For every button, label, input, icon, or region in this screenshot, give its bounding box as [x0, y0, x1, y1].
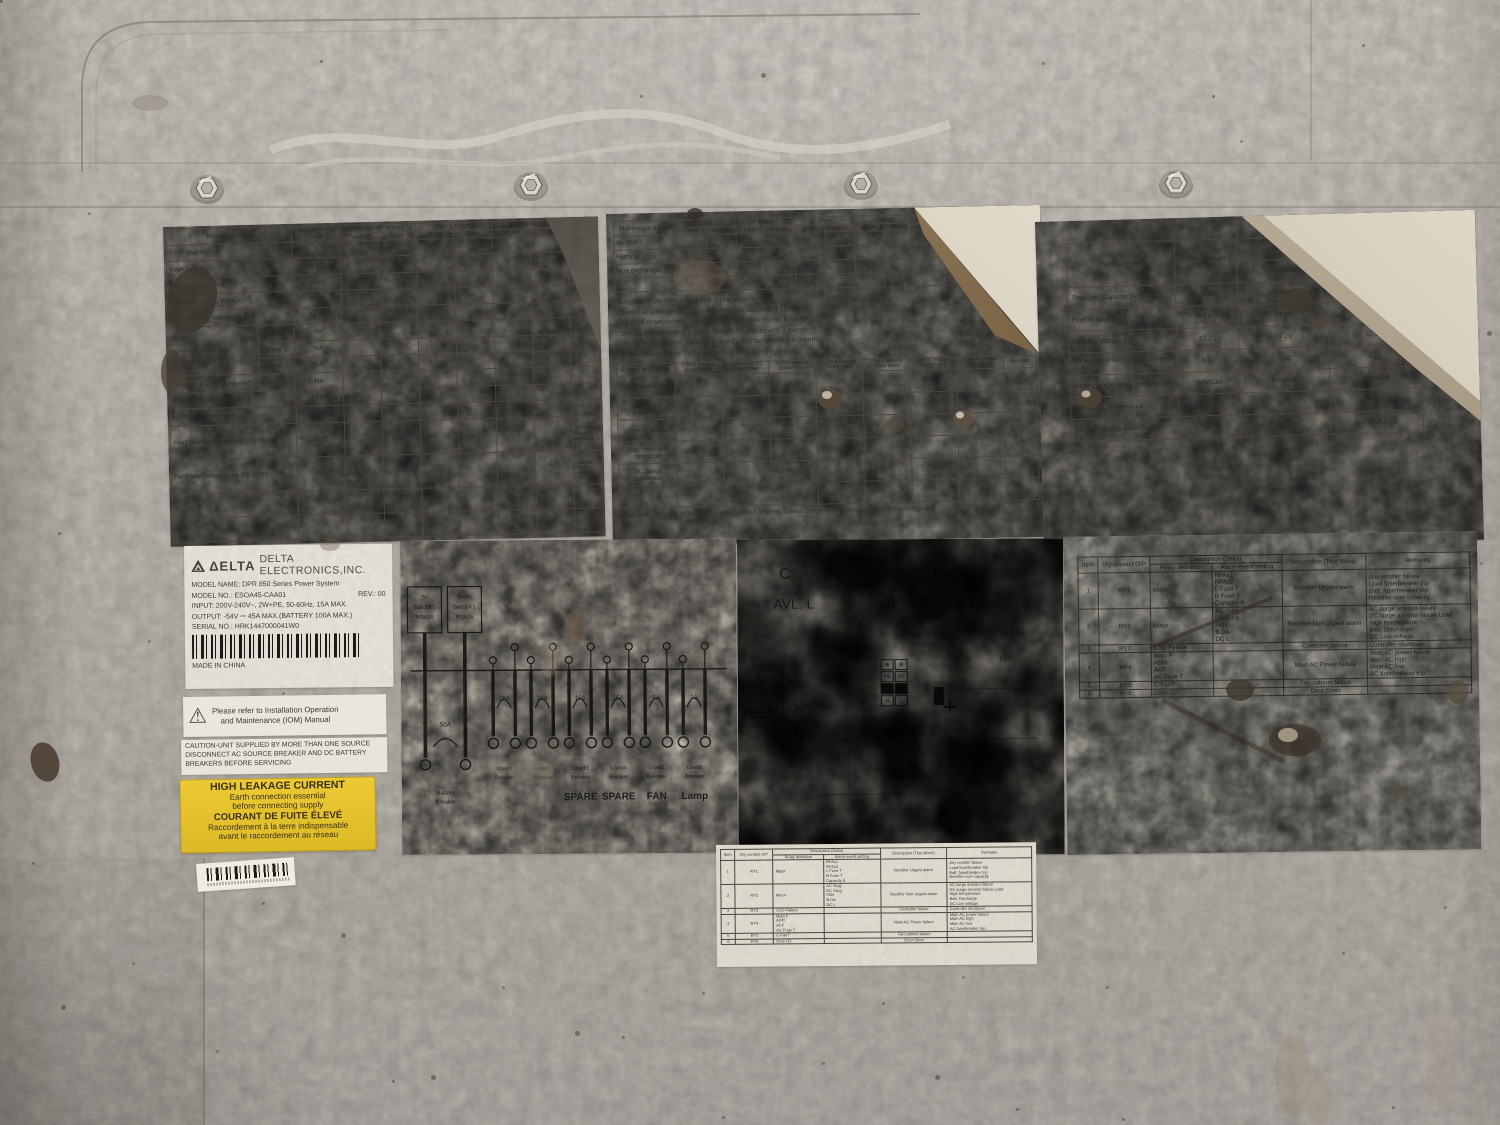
- maint-empty-cell: [884, 230, 914, 245]
- param-empty-cell: [380, 321, 418, 338]
- battery-factory-value: 25°C: [1178, 393, 1241, 417]
- dry-contact-table: ItemDry contact O/PDescription (Delta)De…: [720, 846, 1033, 945]
- dry-row: 4RY4Main F ADH ACF AC Fuse TMain AC Powe…: [1079, 648, 1471, 682]
- param-empty-cell: [459, 452, 498, 487]
- maint-empty-cell: [944, 257, 974, 272]
- dry-alarm-event: AC Surg DC Surg FAN B.Dis DC L: [1212, 606, 1283, 643]
- exam-empty-cell: [910, 391, 957, 414]
- maint-empty-cell: [1003, 242, 1033, 257]
- maint-empty-cell: [974, 270, 1004, 285]
- dry-alarm-event: RFAx1 RFAx2 L Fuse T B Fuse T Capacity A: [824, 859, 881, 883]
- maint-empty-cell: [915, 257, 945, 272]
- label-caution-multisource: CAUTION-UNIT SUPPLIED BY MORE THAN ONE S…: [181, 737, 387, 775]
- maint-empty-cell: [706, 234, 736, 249]
- col-description-truemove: Description (True Move): [880, 847, 947, 859]
- col-setting-items: Setting Items: [1066, 241, 1175, 288]
- param-empty-cell: [495, 351, 533, 368]
- svg-text:SPARE: SPARE: [602, 791, 636, 802]
- param-empty-cell: [381, 354, 419, 371]
- dry-relay-name: RY4: [735, 914, 774, 934]
- param-empty-cell: [458, 402, 496, 419]
- dry-tbody: 1RY1MajorRFAx1 RFAx2 L Fuse T B Fuse T C…: [1078, 568, 1472, 698]
- label-dry-contact-mini: ItemDry contact O/PDescription (Delta)De…: [716, 842, 1037, 967]
- param-empty-cell: [457, 369, 495, 386]
- dry-relay-definition: Major: [1150, 571, 1212, 608]
- param-name: [173, 515, 300, 542]
- dry-item: 1: [721, 861, 735, 885]
- maintenance-table: Maintenance ItemDateDateDateDateDateDate…: [613, 212, 1034, 293]
- dry-remarks: Main AC power failure Main AC high Main …: [1367, 648, 1471, 678]
- param-empty-cell: [383, 454, 422, 489]
- param-empty-cell: [499, 509, 538, 534]
- param-empty-cell: [418, 337, 456, 354]
- maint-item-name: heat exchanger: [615, 263, 678, 278]
- param-name: Fan2 start temperature (°C or °F): [171, 457, 298, 494]
- param-empty-cell: [385, 512, 424, 537]
- exam-empty-cell: [864, 414, 911, 437]
- svg-text:Batt.BK1: Batt.BK1: [453, 604, 475, 610]
- dry-item: 2: [1079, 609, 1100, 645]
- maint-empty-cell: [677, 262, 707, 277]
- battery-50ah-value: 25°C: [1240, 390, 1331, 415]
- svg-text:Lamp: Lamp: [681, 791, 708, 802]
- label-maintenance-schedule: Maintenance ItemDateDateDateDateDateDate…: [606, 205, 1047, 546]
- dry-alarm-event: RFAx1 RFAx2 L Fuse T B Fuse T Capacity A: [1212, 570, 1283, 607]
- exam-empty-cell: [959, 456, 1006, 479]
- dry-relay-definition: Main F ADH ACF AC Fuse T: [774, 913, 825, 933]
- exam-empty-cell: [722, 373, 769, 396]
- exam-item-name: [619, 485, 677, 508]
- param-default-value: NA: [295, 356, 343, 374]
- maint-empty-cell: [914, 243, 944, 258]
- maint-empty-cell: [707, 262, 737, 277]
- maint-empty-cell: [825, 245, 855, 260]
- battery-factory-value: 57.2V: [1177, 327, 1240, 351]
- param-remark: [570, 333, 599, 350]
- maint-empty-cell: [765, 233, 795, 248]
- param-sub: Stage 3: [259, 357, 295, 374]
- battery-50ah-value: 0.1C: [1239, 346, 1330, 371]
- svg-text:Batt.BK1: Batt.BK1: [413, 605, 435, 611]
- maint-empty-cell: [795, 246, 825, 261]
- terminal-cell: N: [881, 695, 894, 706]
- exam-empty-cell: [770, 416, 817, 439]
- param-empty-cell: [454, 254, 492, 271]
- dry-remarks: AC surge arrestor failure DC surge arres…: [1366, 604, 1470, 641]
- col-50ah: 50AH Battery: [1237, 258, 1328, 283]
- col-remark: Remark: [567, 219, 596, 236]
- col-check-record: Check Record(Date/Time): [957, 356, 1004, 370]
- dry-tbody: 1RY1MajorRFAx1 RFAx2 L Fuse T B Fuse T C…: [721, 858, 1033, 945]
- param-table-mount: Item parameterDefault setting valueInsta…: [163, 216, 606, 547]
- svg-text:Breaker: Breaker: [495, 775, 515, 781]
- param-remark: □Fan tray □heat exchange: [573, 450, 603, 485]
- dry-relay-definition: Door O2: [1152, 688, 1214, 697]
- svg-text:16A: 16A: [613, 694, 625, 701]
- maint-empty-cell: [676, 234, 706, 249]
- maint-empty-cell: [826, 273, 856, 288]
- param-empty-cell: [461, 510, 500, 535]
- param-empty-cell: [536, 485, 575, 510]
- dry-relay-name: RY1: [735, 860, 774, 884]
- dry-relay-definition: Major: [773, 860, 824, 884]
- param-empty-cell: [341, 290, 379, 307]
- param-empty-cell: [379, 305, 417, 322]
- param-empty-cell: [419, 353, 457, 370]
- param-default-value: 43.0V: [296, 389, 344, 407]
- param-empty-cell: [378, 239, 416, 256]
- maint-empty-cell: [736, 247, 766, 262]
- param-remark: [569, 284, 598, 301]
- exam-empty-cell: [1006, 456, 1039, 479]
- battery-100ah-value: 100AH: [1327, 278, 1420, 303]
- col-factory-default: Factory default setting: [1174, 239, 1237, 285]
- param-empty-cell: [378, 256, 416, 273]
- maint-empty-cell: [1004, 270, 1034, 285]
- maint-empty-cell: [915, 271, 945, 286]
- maint-empty-cell: [677, 276, 707, 291]
- param-empty-cell: [455, 287, 493, 304]
- dry-row: 1RY1MajorRFAx1 RFAx2 L Fuse T B Fuse T C…: [721, 858, 1032, 885]
- battery-table: Setting ItemsFactory default settingReco…: [1066, 233, 1424, 442]
- dry-description: Main AC Power failure: [1283, 649, 1367, 679]
- dry-description: Door Open: [881, 937, 948, 943]
- param-remark: [568, 235, 597, 252]
- maint-empty-cell: [855, 259, 885, 274]
- exam-empty-cell: [910, 369, 957, 392]
- svg-text:SPARE: SPARE: [564, 792, 598, 803]
- param-default-value: 54.0V: [293, 290, 341, 308]
- hex-bolt: [190, 175, 224, 204]
- exam-tbody: Date and TimeAC Surge protectionBattery …: [617, 368, 1040, 509]
- param-empty-cell: [422, 487, 461, 512]
- exam-item-name: DC Surge protection: [619, 463, 677, 486]
- exam-empty-cell: [676, 418, 723, 441]
- param-empty-cell: [417, 304, 455, 321]
- battery-100ah-value: 25°C: [1330, 388, 1423, 413]
- label-iom-notice: ⚠ Please refer to Installation Operation…: [183, 694, 387, 737]
- col-exam-remark: Remark: [1004, 355, 1037, 368]
- exam-empty-cell: [912, 457, 959, 480]
- param-empty-cell: [379, 289, 417, 306]
- svg-text:Battery: Battery: [437, 791, 456, 797]
- exam-empty-cell: [818, 481, 865, 504]
- dry-description: Rectifier Urgent alarm: [880, 859, 947, 884]
- svg-text:From: From: [458, 595, 471, 601]
- param-empty-cell: [382, 420, 421, 455]
- dry-contact-table-mount: ItemDry contact O/PDescription (Delta)De…: [1063, 531, 1481, 855]
- dry-remarks: [947, 936, 1032, 942]
- param-remark: [571, 383, 600, 400]
- exam-empty-cell: [1006, 478, 1039, 501]
- exam-empty-cell: [865, 458, 912, 481]
- maint-empty-cell: [914, 229, 944, 244]
- svg-text:1A: 1A: [690, 694, 698, 701]
- param-empty-cell: [531, 268, 569, 285]
- svg-text:16A: 16A: [499, 695, 511, 702]
- param-default-value: 3: [292, 241, 340, 259]
- maint-tbody: Air filterFan trayheat exchanger: [614, 228, 1034, 293]
- param-empty-cell: [456, 336, 494, 353]
- col-remarks: Remarks: [947, 847, 1032, 859]
- exam-empty-cell: [723, 439, 770, 462]
- label-dry-contact-large: ItemDry contact O/PDescription (Delta)De…: [1063, 531, 1481, 855]
- col-examination-item: Examination Item: [617, 363, 675, 377]
- dry-relay-name: RY1: [1098, 572, 1150, 609]
- dry-alarm-event: [824, 938, 881, 944]
- dry-contact-table: ItemDry contact O/PDescription (Delta)De…: [1077, 551, 1472, 698]
- photo-equipment-panel: Item parameterDefault setting valueInsta…: [0, 0, 1500, 1125]
- param-name: EQ current limit (0.X C): [168, 325, 259, 376]
- terminal-block: ⊗ ⊗ PE PE N L: [881, 659, 908, 706]
- maint-empty-cell: [885, 244, 915, 259]
- battery-100ah-value: 58.0V: [1331, 410, 1424, 435]
- svg-text:Breaker: Breaker: [609, 774, 629, 780]
- breaker-diagram-mount: ToBatt.BK1POA16FromBatt.BK1POA1650ABatte…: [400, 539, 738, 855]
- exam-empty-cell: [1004, 368, 1037, 391]
- param-default-value: NA: [294, 340, 342, 358]
- maint-empty-cell: [944, 229, 974, 244]
- svg-text:16A: 16A: [537, 695, 549, 702]
- col-check-record: Check Record(Date/Time): [769, 360, 816, 374]
- maint-empty-cell: [855, 273, 885, 288]
- label-high-leakage-warning: HIGH LEAKAGE CURRENT Earth connection es…: [179, 776, 376, 853]
- param-empty-cell: [535, 450, 574, 485]
- param-empty-cell: [492, 237, 530, 254]
- param-empty-cell: [456, 320, 494, 337]
- dry-item: 5: [1080, 682, 1100, 690]
- param-empty-cell: [342, 339, 380, 356]
- param-name: [172, 491, 299, 518]
- exam-empty-cell: [912, 479, 959, 502]
- svg-text:50A: 50A: [439, 722, 451, 729]
- param-empty-cell: [530, 252, 568, 269]
- maint-empty-cell: [885, 272, 915, 287]
- dirt-specks: [0, 0, 3, 3]
- param-empty-cell: [494, 319, 532, 336]
- dry-relay-definition: Minor: [1151, 607, 1213, 644]
- maint-empty-cell: [944, 243, 974, 258]
- maint-empty-cell: [855, 245, 885, 260]
- param-empty-cell: [416, 255, 454, 272]
- dry-alarm-event: AC Surg DC Surg FAN B.Dis DC L: [824, 883, 881, 907]
- hex-bolt: [844, 171, 878, 200]
- maint-empty-cell: [707, 276, 737, 291]
- maint-empty-cell: [736, 261, 766, 276]
- param-remark: [575, 508, 605, 533]
- exam-empty-cell: [817, 437, 864, 460]
- svg-text:Breaker: Breaker: [647, 774, 667, 780]
- svg-text:16A: 16A: [575, 695, 587, 702]
- param-empty-cell: [534, 400, 572, 417]
- param-remark: [571, 366, 600, 383]
- dry-alarm-event: [1213, 650, 1283, 680]
- param-empty-cell: [496, 417, 535, 452]
- exam-item-name: Date and Time: [617, 375, 675, 398]
- param-empty-cell: [381, 371, 419, 388]
- param-default-value: NA: [297, 456, 346, 491]
- battery-setting-name: DC high voltage alarm (DCH): [1071, 417, 1180, 442]
- param-remark: [574, 484, 604, 509]
- param-empty-cell: [347, 513, 386, 538]
- param-empty-cell: [345, 455, 384, 490]
- param-remark: □Fan tray □heat exchange: [572, 415, 602, 450]
- param-empty-cell: [344, 388, 382, 405]
- param-default-value: NA: [295, 373, 343, 391]
- battery-setting-name: Float Voltage (V): [1068, 307, 1177, 332]
- maint-empty-cell: [854, 231, 884, 246]
- dry-remarks: AC surge arrestor failure DC surge arres…: [947, 882, 1032, 907]
- param-empty-cell: [498, 485, 537, 510]
- maint-empty-cell: [825, 259, 855, 274]
- battery-factory-value: 58.0V: [1179, 415, 1242, 439]
- dry-relay-definition: Minor: [773, 884, 824, 908]
- exam-empty-cell: [1005, 434, 1038, 457]
- param-sub: Stage 2: [258, 341, 294, 358]
- battery-50ah-value: 3mV/Cell: [1240, 368, 1331, 393]
- param-empty-cell: [533, 351, 571, 368]
- param-empty-cell: [532, 318, 570, 335]
- dry-relay-name: RY2: [1099, 608, 1151, 645]
- col-check-record: Check Record(Date/Time): [675, 362, 722, 376]
- examination-table: Examination ItemCheck Record(Date/Time)C…: [616, 355, 1040, 509]
- param-sub: Stage 1: [258, 324, 294, 341]
- param-empty-cell: [496, 401, 534, 418]
- battery-factory-value: 3mV/Cell: [1178, 371, 1241, 395]
- battery-setting-name: Equalize Voltage (V): [1069, 329, 1178, 354]
- param-empty-cell: [493, 302, 531, 319]
- param-empty-cell: [423, 511, 462, 536]
- param-empty-cell: [418, 320, 456, 337]
- maint-empty-cell: [825, 231, 855, 246]
- param-empty-cell: [342, 322, 380, 339]
- exam-empty-cell: [722, 395, 769, 418]
- param-remark: [572, 399, 601, 416]
- dry-relay-definition: Main F ADH ACF AC Fuse T: [1151, 651, 1213, 681]
- dry-remarks: [1368, 685, 1472, 694]
- maint-item-name: Air filter: [614, 235, 677, 250]
- maintenance-content: Maintenance ItemDateDateDateDateDateDate…: [613, 212, 1040, 542]
- maint-empty-cell: [796, 274, 826, 289]
- col-alarm-event: Alarm event setting: [1212, 562, 1282, 571]
- caution-line3: BREAKERS BEFORE SERVICING: [185, 757, 383, 769]
- exam-empty-cell: [959, 478, 1006, 501]
- col-check-record: Check Record(Date/Time): [816, 359, 863, 373]
- param-remark: [569, 301, 598, 318]
- param-empty-cell: [454, 237, 492, 254]
- terminal-cell: L: [895, 695, 908, 706]
- maint-empty-cell: [796, 260, 826, 275]
- label-wiring-diagram: C ut AVL. L 0 8D #2(AWG) #6(AWG) AUX TB …: [737, 538, 1065, 856]
- maint-item-name: [615, 277, 678, 292]
- col-item: Item: [1078, 557, 1098, 573]
- exam-empty-cell: [911, 413, 958, 436]
- dry-contact-mini-mount: ItemDry contact O/PDescription (Delta)De…: [720, 846, 1033, 945]
- exam-empty-cell: [816, 371, 863, 394]
- param-empty-cell: [533, 367, 571, 384]
- dry-remarks: Main AC power failure Main AC high Main …: [947, 911, 1032, 931]
- dry-item: 6: [1080, 690, 1100, 698]
- exam-empty-cell: [817, 415, 864, 438]
- maint-empty-cell: [737, 275, 767, 290]
- terminal-cell: PE: [895, 671, 908, 682]
- exam-empty-cell: [724, 461, 771, 484]
- param-empty-cell: [495, 384, 533, 401]
- dry-remarks: Any rectifier failure Load fuse/breaker …: [947, 858, 1032, 883]
- param-empty-cell: [344, 421, 383, 456]
- exam-empty-cell: [675, 396, 722, 419]
- terminal-cell: [895, 683, 908, 694]
- param-default-value: [298, 490, 347, 515]
- wiring-content: C ut AVL. L 0 8D #2(AWG) #6(AWG) AUX TB …: [737, 538, 1065, 856]
- maint-empty-cell: [677, 248, 707, 263]
- param-empty-cell: [344, 404, 382, 421]
- exam-empty-cell: [957, 368, 1004, 391]
- param-empty-cell: [382, 403, 420, 420]
- svg-text:FAN: FAN: [647, 791, 667, 802]
- battery-50ah-value: 50AH: [1237, 280, 1328, 305]
- battery-setting-name: Battery temperature compensation: [1070, 373, 1179, 398]
- param-empty-cell: [419, 370, 457, 387]
- param-empty-cell: [455, 303, 493, 320]
- param-empty-cell: [457, 352, 495, 369]
- battery-setting-name: Reference Temperature: [1070, 395, 1179, 420]
- param-empty-cell: [458, 418, 497, 453]
- dry-remarks: Any rectifier failure Load fuse/breaker …: [1366, 568, 1470, 605]
- param-default-value: [299, 514, 348, 539]
- svg-text:To: To: [421, 595, 427, 601]
- param-empty-cell: [455, 270, 493, 287]
- svg-text:Breaker: Breaker: [533, 775, 553, 781]
- svg-text:Breaker: Breaker: [685, 774, 705, 780]
- param-empty-cell: [417, 288, 455, 305]
- svg-text:Load4: Load4: [611, 765, 627, 771]
- exam-empty-cell: [769, 394, 816, 417]
- svg-text:Breaker: Breaker: [571, 775, 591, 781]
- maint-empty-cell: [736, 233, 766, 248]
- col-default-setting: Default setting value: [292, 225, 340, 242]
- col-maintenance-item: Maintenance Item: [614, 220, 677, 236]
- battery-setting-name: Battery maximum charge current (0.X C): [1069, 351, 1178, 376]
- label-breaker-diagram: ToBatt.BK1POA16FromBatt.BK1POA1650ABatte…: [400, 539, 738, 855]
- param-table: Item parameterDefault setting valueInsta…: [165, 218, 605, 542]
- warning-triangle-icon: ⚠: [188, 707, 207, 727]
- exam-empty-cell: [864, 436, 911, 459]
- dry-description: Rectifier Non Urgent alarm: [880, 883, 947, 908]
- param-empty-cell: [537, 509, 576, 534]
- col-item: Item: [721, 849, 735, 860]
- terminal-cell: [881, 683, 894, 694]
- col-dry-contact-op: Dry contact O/P: [1098, 556, 1150, 573]
- dry-description: Rectifier Urgent alarm: [1282, 569, 1366, 606]
- param-empty-cell: [495, 368, 533, 385]
- param-empty-cell: [342, 306, 380, 323]
- iom-line2: and Maintenance (IOM) Manual: [212, 715, 339, 727]
- col-check-record: Check Record(Date/Time): [910, 357, 957, 371]
- svg-text:Load5: Load5: [649, 765, 665, 771]
- param-empty-cell: [530, 236, 568, 253]
- dry-row: 2RY2MinorAC Surg DC Surg FAN B.Dis DC LR…: [721, 882, 1032, 909]
- param-empty-cell: [341, 273, 379, 290]
- exam-empty-cell: [675, 374, 722, 397]
- exam-empty-cell: [771, 482, 818, 505]
- maint-empty-cell: [885, 258, 915, 273]
- svg-text:POA16: POA16: [415, 615, 433, 621]
- exam-empty-cell: [770, 438, 817, 461]
- maint-empty-cell: [974, 256, 1004, 271]
- maint-item-name: Fan tray: [614, 249, 677, 264]
- dry-row: 4RY4Main F ADH ACF AC Fuse TMain AC Powe…: [721, 911, 1032, 933]
